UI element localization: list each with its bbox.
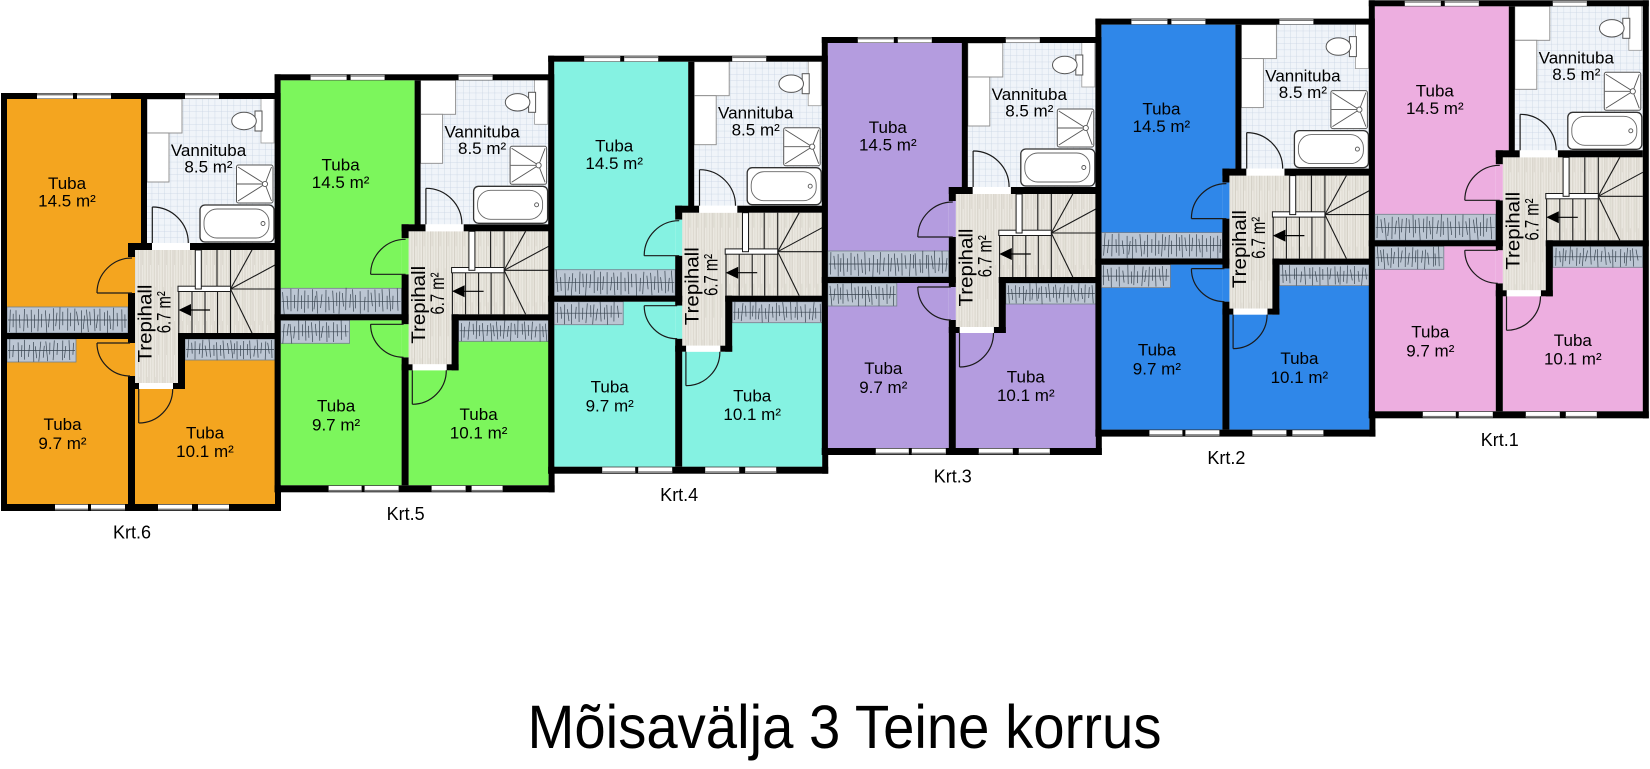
- svg-text:Krt.1: Krt.1: [1481, 430, 1519, 450]
- svg-text:Tuba: Tuba: [1280, 349, 1319, 368]
- svg-text:14.5 m²: 14.5 m²: [312, 173, 370, 192]
- svg-text:Trepihall: Trepihall: [956, 229, 977, 307]
- svg-text:14.5 m²: 14.5 m²: [1133, 117, 1191, 136]
- svg-text:8.5 m²: 8.5 m²: [1005, 102, 1054, 121]
- svg-text:9.7 m²: 9.7 m²: [586, 397, 635, 416]
- svg-text:9.7 m²: 9.7 m²: [312, 415, 361, 434]
- svg-text:Tuba: Tuba: [48, 174, 87, 193]
- svg-text:6.7 m²: 6.7 m²: [1249, 217, 1270, 259]
- svg-text:Tuba: Tuba: [1416, 81, 1455, 100]
- svg-text:Tuba: Tuba: [460, 405, 499, 424]
- svg-text:10.1 m²: 10.1 m²: [450, 424, 508, 443]
- svg-text:Mõisavälja 3 Teine korrus: Mõisavälja 3 Teine korrus: [528, 693, 1162, 761]
- svg-text:9.7 m²: 9.7 m²: [38, 434, 87, 453]
- svg-text:14.5 m²: 14.5 m²: [859, 136, 917, 155]
- svg-text:14.5 m²: 14.5 m²: [38, 192, 96, 211]
- svg-text:10.1 m²: 10.1 m²: [1271, 368, 1329, 387]
- svg-text:Trepihall: Trepihall: [683, 247, 704, 325]
- svg-text:10.1 m²: 10.1 m²: [1544, 350, 1602, 369]
- svg-text:Tuba: Tuba: [1138, 341, 1177, 360]
- svg-text:10.1 m²: 10.1 m²: [997, 386, 1055, 405]
- svg-text:8.5 m²: 8.5 m²: [1279, 83, 1328, 102]
- svg-text:6.7 m²: 6.7 m²: [1522, 199, 1543, 241]
- svg-text:Tuba: Tuba: [869, 118, 908, 137]
- svg-text:Tuba: Tuba: [733, 386, 772, 405]
- svg-text:Tuba: Tuba: [864, 359, 903, 378]
- svg-text:Tuba: Tuba: [317, 396, 356, 415]
- svg-text:Trepihall: Trepihall: [1230, 210, 1251, 288]
- svg-text:14.5 m²: 14.5 m²: [1406, 99, 1464, 118]
- svg-text:8.5 m²: 8.5 m²: [458, 139, 507, 158]
- svg-text:10.1 m²: 10.1 m²: [723, 405, 781, 424]
- svg-text:Trepihall: Trepihall: [409, 266, 430, 344]
- svg-text:9.7 m²: 9.7 m²: [1133, 360, 1182, 379]
- svg-text:8.5 m²: 8.5 m²: [1552, 65, 1601, 84]
- svg-text:Tuba: Tuba: [1007, 368, 1046, 387]
- svg-text:Tuba: Tuba: [322, 155, 361, 174]
- svg-text:9.7 m²: 9.7 m²: [859, 378, 908, 397]
- svg-text:Trepihall: Trepihall: [1503, 192, 1524, 270]
- svg-text:14.5 m²: 14.5 m²: [585, 154, 643, 173]
- svg-text:Trepihall: Trepihall: [136, 285, 157, 363]
- svg-text:6.7 m²: 6.7 m²: [975, 235, 996, 277]
- svg-text:Tuba: Tuba: [1411, 322, 1450, 341]
- svg-text:Tuba: Tuba: [43, 415, 82, 434]
- svg-text:Krt.5: Krt.5: [387, 504, 425, 524]
- svg-text:6.7 m²: 6.7 m²: [155, 291, 176, 333]
- svg-text:Krt.6: Krt.6: [113, 523, 151, 543]
- svg-text:8.5 m²: 8.5 m²: [184, 158, 233, 177]
- svg-text:6.7 m²: 6.7 m²: [428, 273, 449, 315]
- svg-text:10.1 m²: 10.1 m²: [176, 442, 234, 461]
- svg-text:Tuba: Tuba: [186, 424, 225, 443]
- svg-text:Tuba: Tuba: [1142, 100, 1181, 119]
- svg-text:Krt.4: Krt.4: [660, 485, 698, 505]
- svg-text:Tuba: Tuba: [1554, 331, 1593, 350]
- svg-text:Tuba: Tuba: [591, 378, 630, 397]
- svg-text:Krt.2: Krt.2: [1207, 448, 1245, 468]
- svg-text:9.7 m²: 9.7 m²: [1406, 341, 1455, 360]
- svg-text:Tuba: Tuba: [595, 137, 634, 156]
- svg-text:Krt.3: Krt.3: [934, 467, 972, 487]
- svg-text:8.5 m²: 8.5 m²: [732, 120, 781, 139]
- svg-text:6.7 m²: 6.7 m²: [702, 254, 723, 296]
